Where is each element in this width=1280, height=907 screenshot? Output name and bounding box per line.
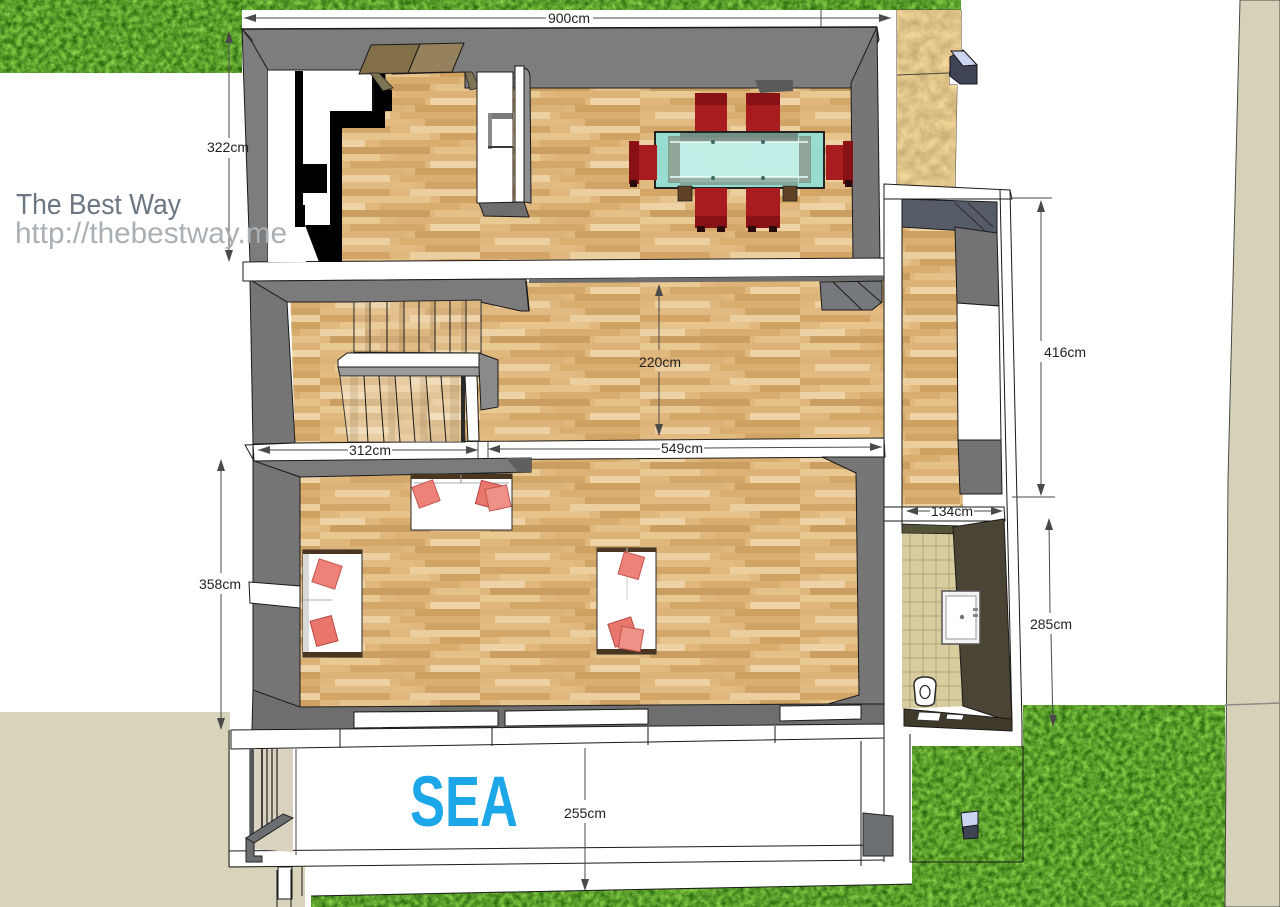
svg-text:255cm: 255cm — [564, 805, 606, 821]
svg-text:416cm: 416cm — [1044, 344, 1086, 360]
svg-text:285cm: 285cm — [1030, 616, 1072, 632]
svg-text:312cm: 312cm — [349, 442, 391, 458]
svg-text:SEA: SEA — [410, 763, 518, 842]
svg-text:900cm: 900cm — [548, 10, 590, 26]
svg-text:322cm: 322cm — [207, 139, 249, 155]
svg-text:549cm: 549cm — [661, 440, 703, 456]
svg-text:358cm: 358cm — [199, 576, 241, 592]
svg-text:220cm: 220cm — [639, 354, 681, 370]
svg-text:134cm: 134cm — [931, 503, 973, 519]
svg-text:http://thebestway.me: http://thebestway.me — [15, 217, 287, 250]
